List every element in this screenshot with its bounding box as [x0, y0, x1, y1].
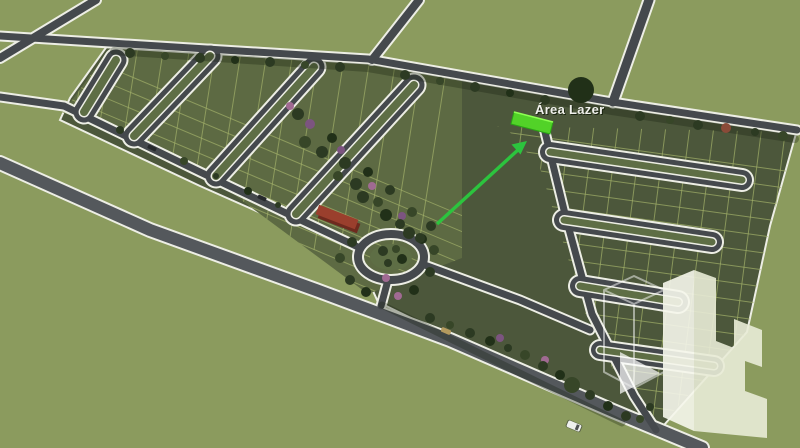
- logo-tower-lit-face: [663, 270, 694, 431]
- aerial-scene: Área Lazer Área Lazer: [0, 0, 800, 448]
- area-label: Área Lazer: [535, 102, 604, 117]
- masterplan-render: Área Lazer Área Lazer: [0, 0, 800, 448]
